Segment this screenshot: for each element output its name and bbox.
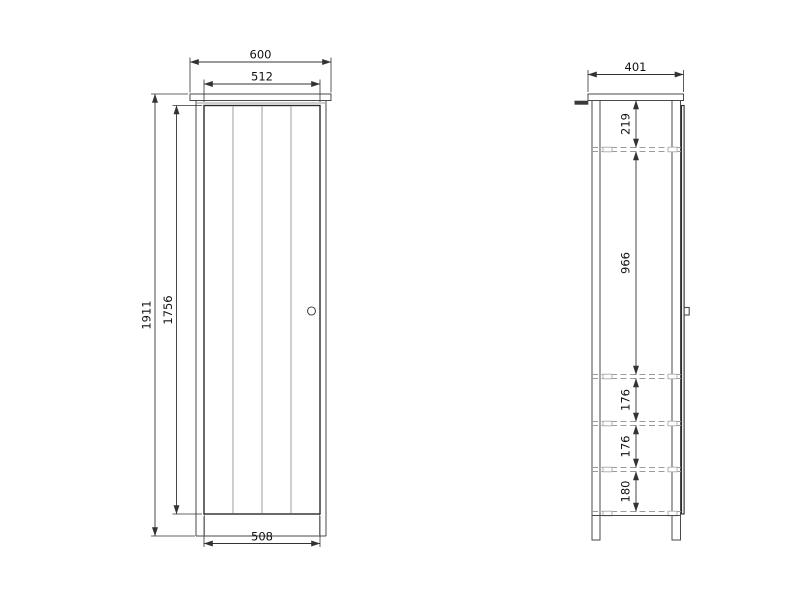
dim-shelf3-to-shelf4: 176 [619,426,637,468]
dim-shelf2-to-shelf3: 176 [619,379,637,422]
side-bottom-board [592,511,681,516]
shelf-pin-icon [603,467,612,472]
front-top-board [190,94,331,101]
side-shelf-2 [592,374,681,379]
dim-front-overall-width-label: 600 [250,48,272,62]
dim-shelf3-to-shelf4-label: 176 [619,436,633,458]
dim-top-to-shelf1-label: 219 [619,113,633,135]
technical-drawing-canvas: 600 512 1911 1756 508 [0,0,800,600]
dim-front-overall-height-label: 1911 [140,300,154,329]
dim-shelf1-to-shelf2-label: 966 [619,252,633,274]
front-view: 600 512 1911 1756 508 [140,48,332,548]
shelf-pin-icon [603,374,612,379]
wall-bracket-icon [575,101,589,105]
dim-door-width-label: 512 [251,70,273,84]
door-knob [308,307,316,315]
dim-side-depth: 401 [588,60,684,92]
shelf-pin-icon [668,467,677,472]
side-shelf-4 [592,467,681,472]
dim-top-to-shelf1: 219 [619,101,637,148]
side-rear-leg [592,101,600,541]
side-top-board [588,94,684,101]
shelf-pin-icon [668,374,677,379]
dim-shelf2-to-shelf3-label: 176 [619,389,633,411]
side-view: 401 219 966 176 176 180 [575,60,690,540]
dim-shelf4-to-bottom: 180 [619,472,637,512]
dim-door-height-label: 1756 [161,295,175,324]
dim-bottom-width: 508 [204,516,320,547]
dim-shelf1-to-shelf2: 966 [619,152,637,375]
shelf-pin-icon [603,147,612,152]
side-front-leg [672,101,681,541]
dim-shelf4-to-bottom-label: 180 [619,481,633,503]
side-shelf-3 [592,421,681,426]
side-shelf-1 [592,147,681,152]
shelf-pin-icon [603,421,612,426]
shelf-pin-icon [668,421,677,426]
shelf-pin-icon [668,147,677,152]
dim-side-depth-label: 401 [625,60,647,74]
dim-bottom-width-label: 508 [251,530,273,544]
side-door-knob [684,308,689,316]
